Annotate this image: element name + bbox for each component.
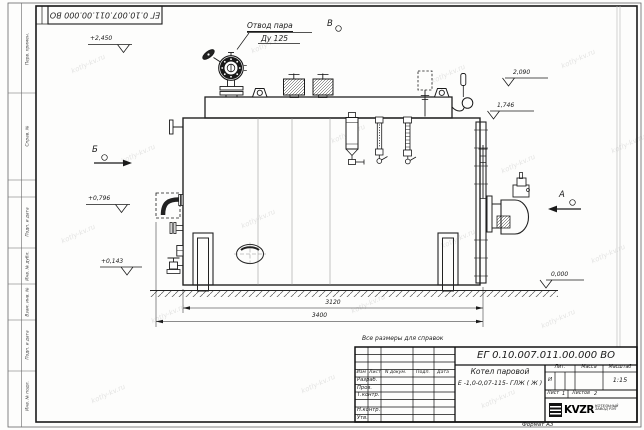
elevation-top-left: +2,450 (90, 36, 112, 42)
row-n-kontr: Н.контр. (357, 408, 380, 413)
col-data: Дата (437, 371, 449, 376)
view-marker-a: А (559, 191, 565, 200)
strip-label-inv-no-podl: Инв. № подл. (26, 381, 31, 411)
drawing-sheet: kotly-kv.ru kotly-kv.ru kotly-kv.ru kotl… (0, 0, 644, 430)
view-markers-geometry (94, 26, 581, 213)
water-level-equipment (346, 113, 416, 165)
manufacturer-subtext: КОТЕЛЬНЫЙ ЗАВОД РЭП (595, 405, 618, 412)
burner (487, 173, 530, 235)
sheets-total-value: 2 (594, 392, 597, 397)
col-n-dokum: N докум. (385, 371, 406, 376)
lit-value: И (545, 378, 555, 384)
col-podp: Подп. (416, 371, 430, 376)
elevation-marks (86, 45, 584, 289)
reference-note: Все размеры для справок (362, 336, 443, 342)
ground-line (150, 291, 558, 298)
row-razrab: Разраб. (357, 378, 377, 383)
col-list: Лист (369, 371, 381, 376)
product-code: Е -1,0-0,07-115- ГЛЖ ( Ж ) (455, 381, 545, 387)
boiler-shell (183, 97, 480, 285)
elevation-left-low: +0,143 (101, 259, 123, 265)
manufacturer-logo: KVZR (549, 403, 594, 417)
product-name: Котел паровой (455, 368, 545, 376)
front-plate (474, 122, 488, 283)
strip-label-sprav-no: Справ. № (26, 126, 31, 147)
strip-label-vzam-inv-no: Взам. инв. № (26, 287, 31, 316)
elevation-right-upper: 2,090 (513, 70, 530, 76)
steam-outlet-dn-callout: Ду 125 (261, 35, 288, 43)
lit-label: Лит. (545, 366, 575, 371)
strip-label-inv-no-dubl: Инв. № дубл. (26, 251, 31, 280)
elevation-right-lower: 1,746 (497, 103, 514, 109)
strip-label-podp-data-upper: Подп. и дата (26, 207, 31, 236)
dimension-overall-length: 3400 (156, 313, 483, 319)
kvzr-emblem-icon (549, 403, 562, 417)
title-block-doc-number: ЕГ 0.10.007.011.00.000 ВО (455, 348, 637, 364)
format-note: Формат А3 (522, 423, 553, 429)
manufacturer-subtext-line2: ЗАВОД РЭП (595, 408, 618, 412)
fold-marks (617, 6, 620, 347)
sheet-label: Лист (547, 392, 559, 397)
massa-label: Масса (575, 366, 603, 371)
col-izm: Изм (357, 371, 366, 376)
strip-label-perv-primen: Перв. примен. (26, 33, 31, 65)
elevation-left-mid: +0,796 (88, 196, 110, 202)
masshtab-label: Масштаб (603, 366, 637, 371)
manhole (234, 243, 266, 266)
strip-label-podp-data-lower: Подп. и дата (26, 330, 31, 359)
kvzr-brand-text: KVZR (564, 404, 594, 416)
dimension-shell-length: 3120 (183, 300, 483, 306)
steam-valve (201, 33, 249, 98)
rear-fittings (156, 120, 183, 274)
top-stamp-doc-number: ЕГ 0.10.007.011.00.000 ВО (50, 11, 160, 20)
view-marker-v: В (327, 20, 333, 29)
sheet-value: 1 (562, 392, 565, 397)
elevation-ground: 0,000 (551, 272, 568, 278)
masshtab-value: 1:15 (603, 377, 637, 384)
steam-outlet-callout: Отвод пара (247, 22, 293, 32)
row-utv: Утв. (357, 416, 368, 421)
drum-fittings (253, 71, 473, 117)
row-prov: Пров. (357, 386, 372, 391)
sheets-total-label: Листов (572, 392, 590, 397)
view-marker-b: Б (92, 146, 98, 155)
row-t-kontr: Т.контр. (357, 393, 379, 398)
boiler-supports (193, 233, 458, 291)
